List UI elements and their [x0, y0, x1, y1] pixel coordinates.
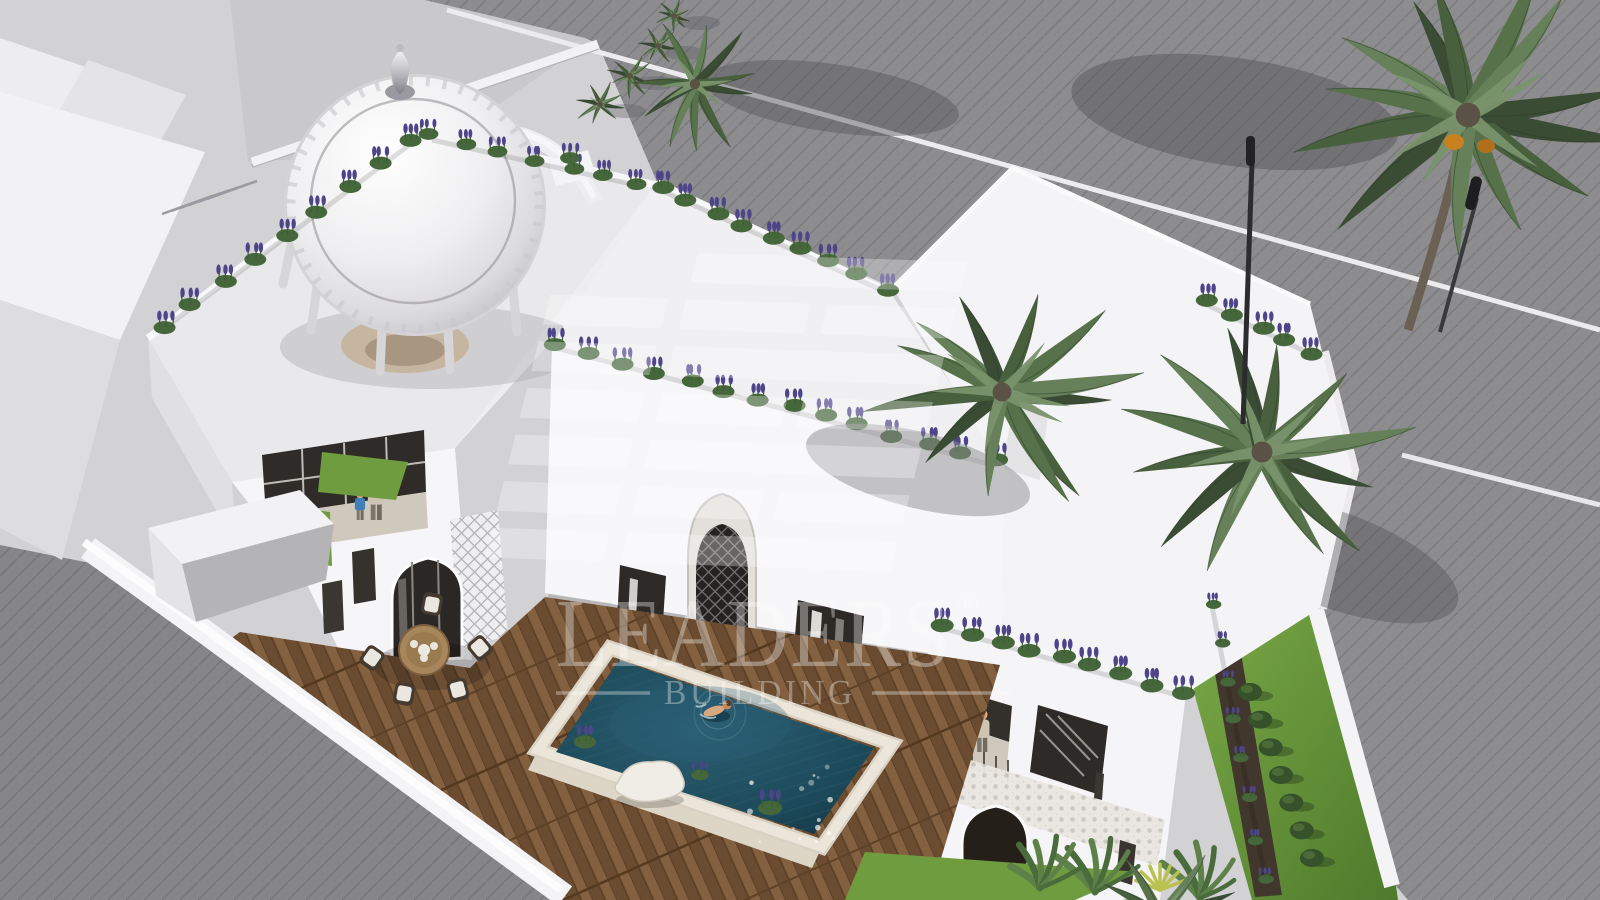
watermark-registered-icon: ®: [956, 586, 979, 619]
chair: [392, 681, 416, 706]
lavender-clump: [1225, 707, 1240, 723]
lavender-clump: [488, 136, 508, 157]
window-slit: [322, 580, 344, 634]
villa-aerial-rendering: LEADERS ® BUILDING: [0, 0, 1600, 900]
scene-svg: LEADERS ® BUILDING: [0, 0, 1600, 900]
chair: [420, 591, 444, 616]
watermark-brand-text: LEADERS: [556, 580, 952, 687]
window-slit: [352, 548, 376, 604]
watermark-subtitle-text: BUILDING: [664, 673, 856, 712]
lavender-clump: [1172, 675, 1195, 700]
lavender-clump: [179, 287, 201, 311]
